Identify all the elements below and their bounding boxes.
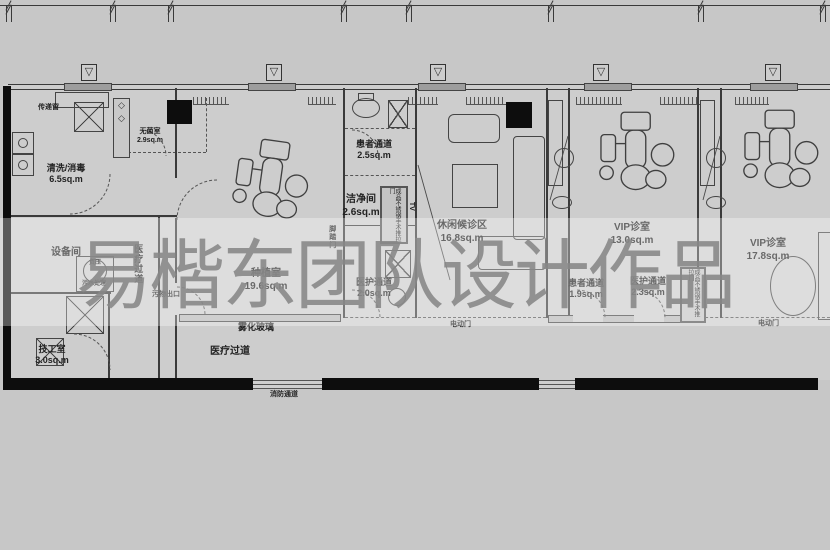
label-foot-pedal-door: 脚踏门 <box>327 222 336 252</box>
label-electric-door-2: 电动门 <box>758 320 779 329</box>
room-label-technician: 技工室3.0sq.m <box>22 344 82 367</box>
room-label-waiting-area: 休闲候诊区16.8sq.m <box>422 220 502 245</box>
steel-door-label: 成品不锈钢手术推拉门 <box>687 269 699 321</box>
room-label-staff-corridor-23: 医护通道2.3sq.m <box>620 276 676 299</box>
room-label-vip-178: VIP诊室17.8sq.m <box>730 238 806 263</box>
room-label-patient-corridor-25: 患者通道2.5sq.m <box>346 139 402 162</box>
room-label-clean-room: 洁净间2.6sq.m <box>333 194 389 219</box>
room-label-patient-corridor-19: 患者通道1.9sq.m <box>558 278 614 301</box>
label-sewage: 污水处理 <box>76 281 112 289</box>
steel-door-box: 成品不锈钢手术推拉门 <box>680 267 706 323</box>
room-label-staff-corridor-20: 医护通道2.0sq.m <box>346 277 402 300</box>
room-label-implant: 种植室19.6sq.m <box>222 268 310 293</box>
label-tv: TV <box>406 202 415 211</box>
label-electric-door-1: 电动门 <box>450 321 471 330</box>
label-waste-exit: 污物出口 <box>152 291 180 300</box>
label-fog-glass: 雾化玻璃 <box>238 322 274 333</box>
floor-plan-canvas: ▽ ▽ ▽ ▽ ▽ ◇◇ <box>0 0 830 550</box>
steel-door-label: 成品不锈钢手术推拉门 <box>388 188 400 242</box>
label-medical-corridor-v: 医疗过道 <box>132 236 143 292</box>
label-fire-passage: 消防通道 <box>270 391 298 400</box>
label-negative-pressure: 负压 <box>80 260 110 268</box>
room-label-sterile: 无菌室2.9sq.m <box>118 128 182 146</box>
room-label-vip-13: VIP诊室13.0sq.m <box>596 222 668 247</box>
label-pass-window: 传递窗 <box>38 104 59 113</box>
label-medical-corridor-h: 医疗过道 <box>210 346 250 359</box>
room-label-cleaning: 清洗/消毒6.5sq.m <box>30 163 102 186</box>
room-label-equipment: 设备间 <box>36 247 96 260</box>
